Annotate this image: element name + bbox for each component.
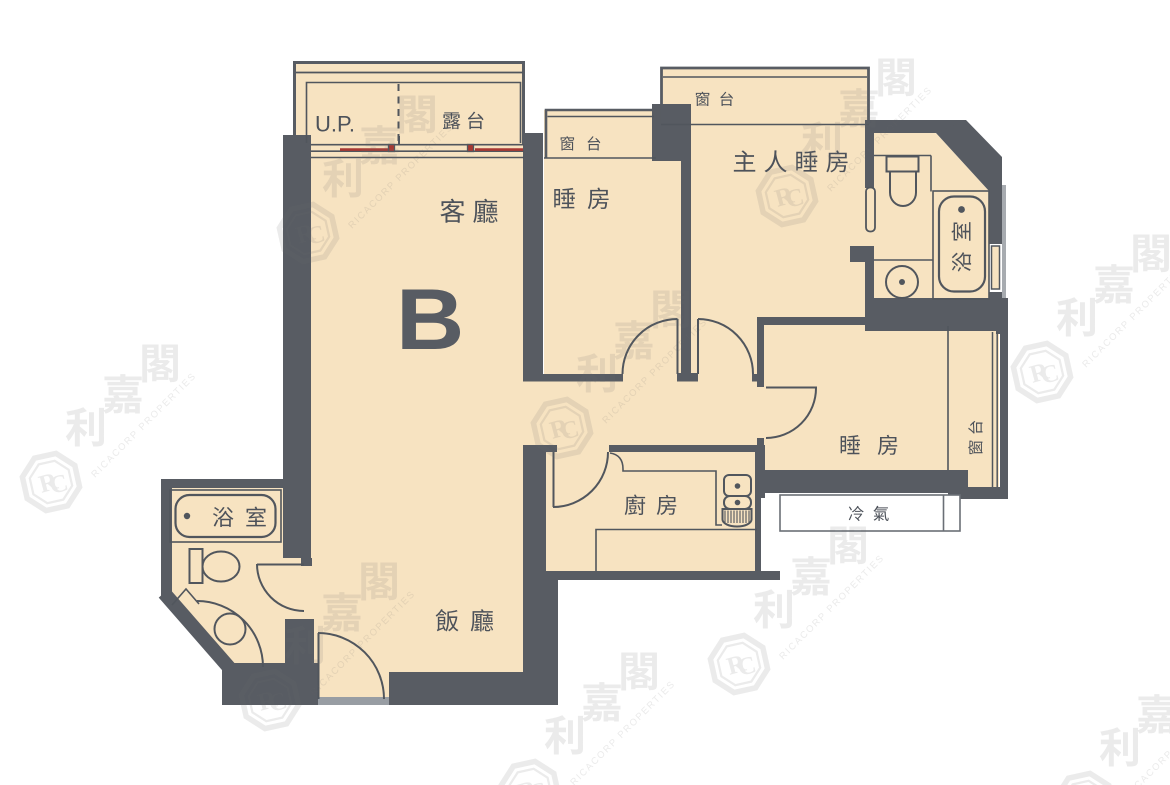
svg-text:U.P.: U.P. bbox=[315, 112, 355, 137]
svg-text:B: B bbox=[396, 272, 464, 368]
